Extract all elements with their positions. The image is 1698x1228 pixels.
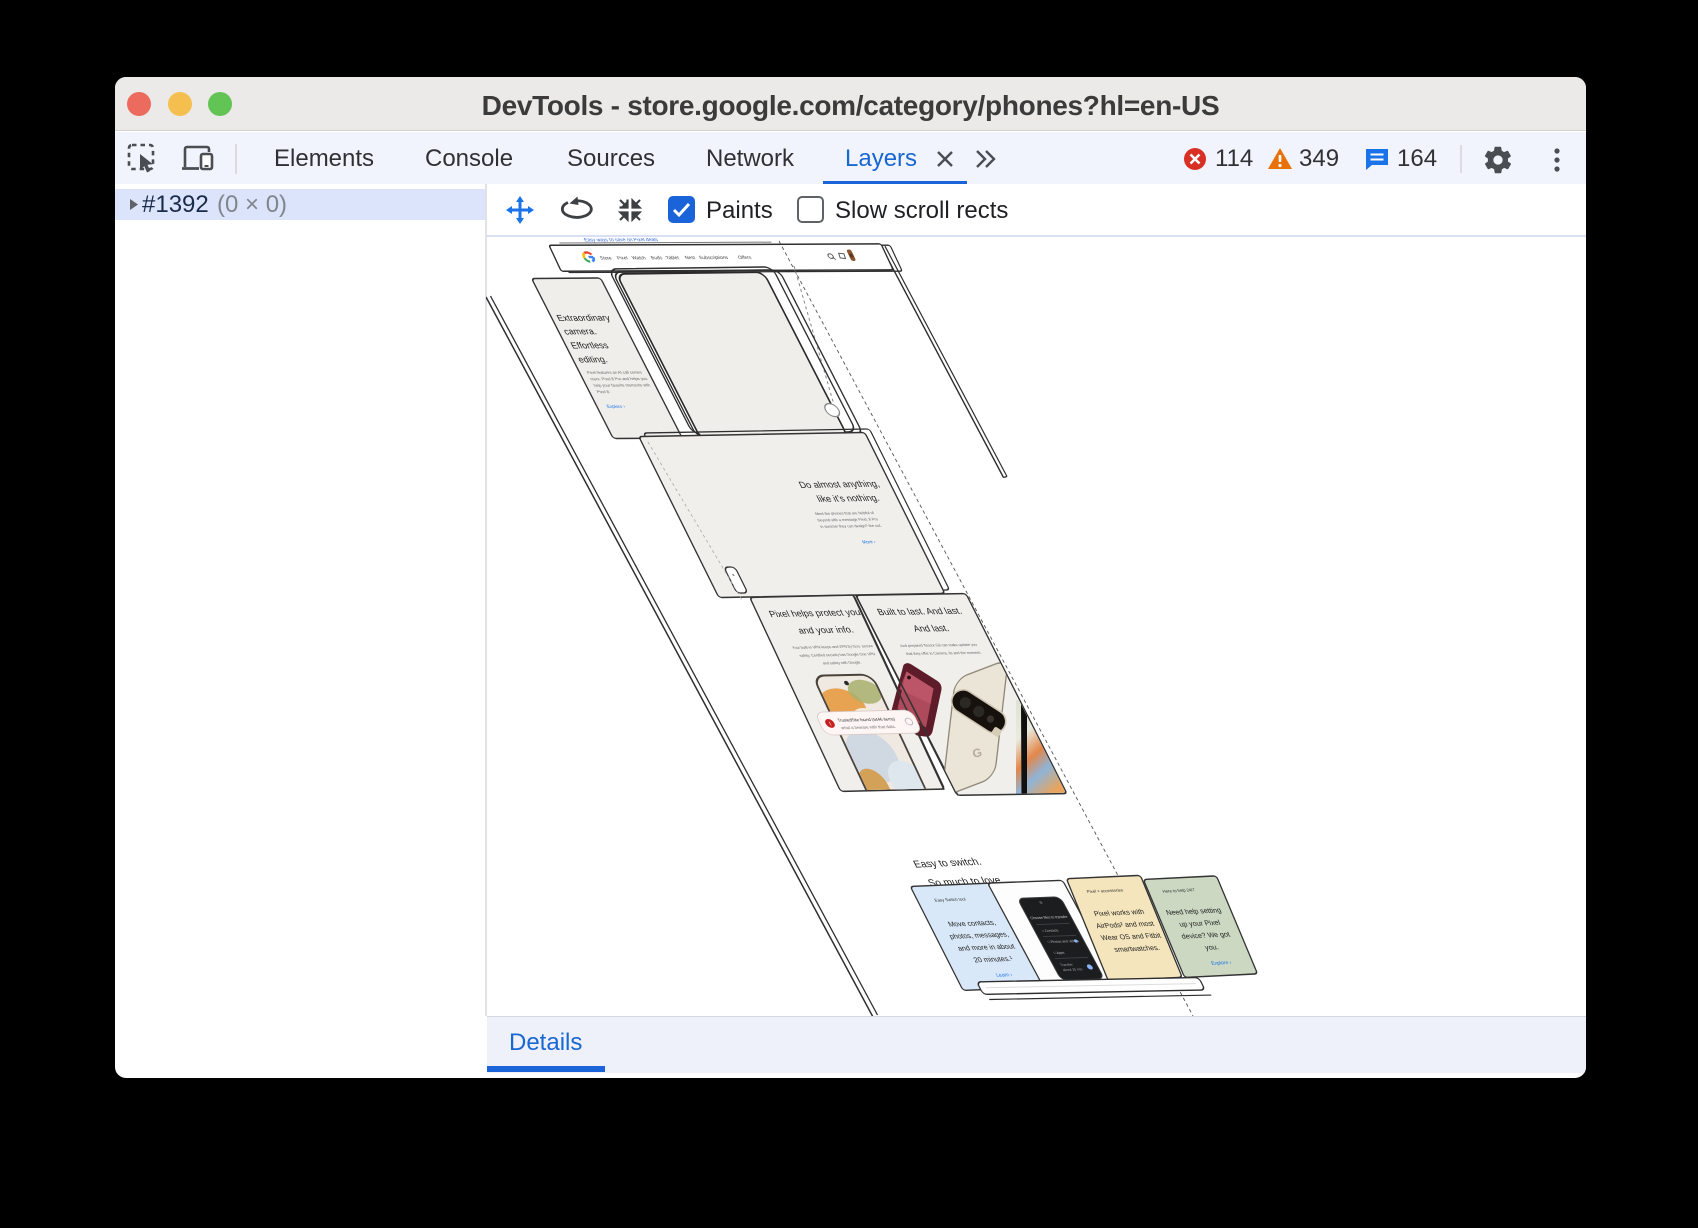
svg-text:20 minutes.¹: 20 minutes.¹ bbox=[972, 954, 1015, 964]
svg-text:□ Apps: □ Apps bbox=[1053, 951, 1066, 955]
svg-text:and your info.: and your info. bbox=[796, 625, 855, 637]
svg-text:And last.: And last. bbox=[911, 624, 951, 635]
svg-text:more. Pixel 8 Pro and helps yo: more. Pixel 8 Pro and helps you bbox=[589, 376, 649, 381]
svg-text:help your favorite moments wit: help your favorite moments with bbox=[592, 383, 651, 388]
svg-text:Do almost anything,: Do almost anything, bbox=[797, 479, 882, 491]
svg-text:Effortless: Effortless bbox=[569, 341, 611, 351]
svg-text:Pixel features an AI call come: Pixel features an AI call comes bbox=[586, 370, 643, 375]
svg-text:Explore ›: Explore › bbox=[1210, 960, 1233, 967]
svg-text:Built to last. And last.: Built to last. And last. bbox=[875, 606, 964, 618]
svg-text:Pixel helps protect you: Pixel helps protect you bbox=[767, 607, 862, 620]
svg-text:Easy ways to save on Pixel dea: Easy ways to save on Pixel deals bbox=[583, 238, 660, 243]
svg-text:○ Contacts: ○ Contacts bbox=[1041, 929, 1060, 933]
svg-text:editing.: editing. bbox=[576, 355, 609, 365]
svg-text:camera.: camera. bbox=[562, 327, 599, 337]
svg-text:Easy to switch.: Easy to switch. bbox=[911, 856, 983, 870]
svg-text:Extraordinary: Extraordinary bbox=[555, 313, 612, 323]
svg-text:Pixel 8.: Pixel 8. bbox=[596, 389, 612, 394]
svg-text:Learn ›: Learn › bbox=[995, 972, 1014, 978]
svg-text:about 20 min: about 20 min bbox=[1062, 968, 1084, 972]
svg-text:Subscriptions: Subscriptions bbox=[698, 255, 730, 261]
svg-text:like it’s nothing.: like it’s nothing. bbox=[815, 493, 881, 504]
svg-text:and safety with Google.: and safety with Google. bbox=[822, 660, 863, 666]
svg-text:Explore ›: Explore › bbox=[606, 404, 627, 410]
